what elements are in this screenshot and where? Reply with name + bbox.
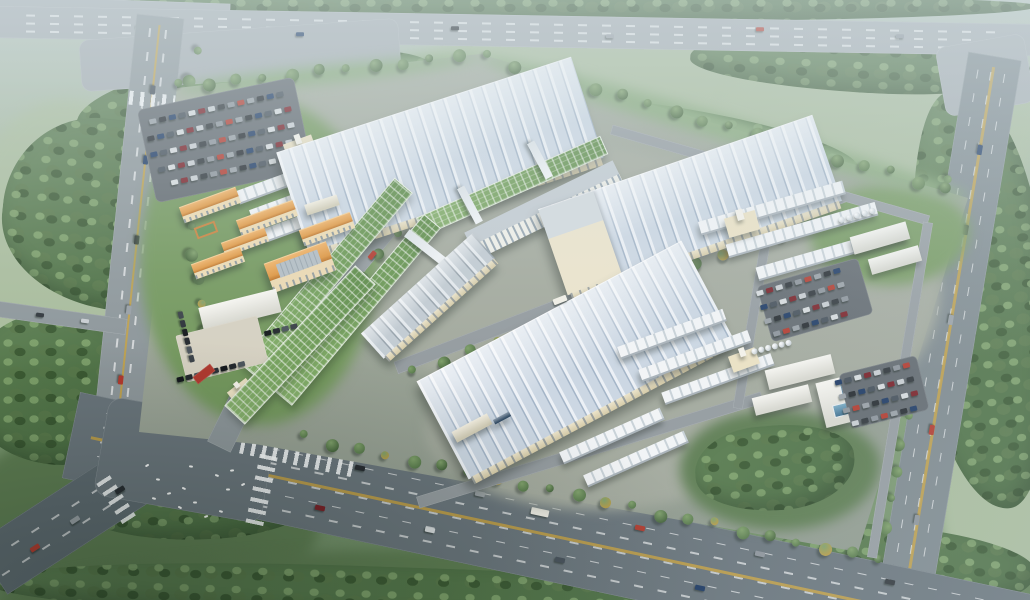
left-car-4 (126, 305, 131, 314)
left-car-1 (150, 85, 155, 94)
aerial-industrial-park-render (0, 0, 1030, 600)
left-car-5 (118, 375, 123, 384)
hwy-car-6 (896, 34, 904, 38)
hwy-car-4 (606, 34, 614, 38)
birds (145, 465, 245, 520)
left-car-3 (134, 235, 139, 244)
hwy-car-2 (296, 32, 304, 36)
hwy-car-3 (451, 26, 459, 30)
hwy-car-5 (756, 27, 764, 31)
